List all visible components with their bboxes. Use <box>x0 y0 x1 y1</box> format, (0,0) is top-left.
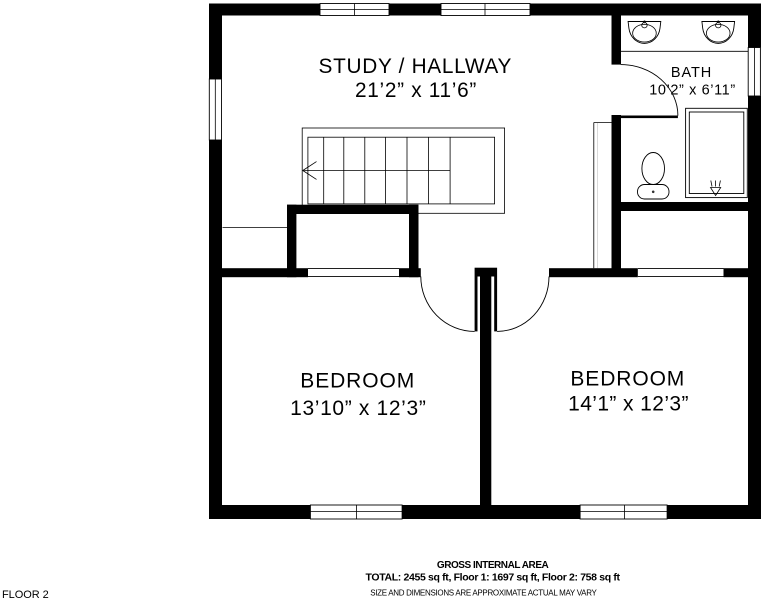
svg-text:21’2” x 11’6”: 21’2” x 11’6” <box>355 79 477 102</box>
svg-text:14’1” x 12’3”: 14’1” x 12’3” <box>568 392 689 415</box>
svg-text:BATH: BATH <box>671 65 712 81</box>
svg-text:BEDROOM: BEDROOM <box>570 368 685 391</box>
svg-text:STUDY / HALLWAY: STUDY / HALLWAY <box>319 55 512 78</box>
svg-text:10’2” x 6’11”: 10’2” x 6’11” <box>649 83 736 99</box>
svg-text:13’10” x 12’3”: 13’10” x 12’3” <box>290 397 426 420</box>
svg-text:FLOOR 2: FLOOR 2 <box>2 589 49 600</box>
svg-text:BEDROOM: BEDROOM <box>300 369 415 392</box>
svg-text:TOTAL: 2455 sq ft, Floor 1: 16: TOTAL: 2455 sq ft, Floor 1: 1697 sq ft, … <box>366 571 621 583</box>
svg-text:SIZE AND DIMENSIONS ARE APPROX: SIZE AND DIMENSIONS ARE APPROXIMATE ACTU… <box>370 588 597 597</box>
svg-text:GROSS INTERNAL AREA: GROSS INTERNAL AREA <box>437 560 549 571</box>
